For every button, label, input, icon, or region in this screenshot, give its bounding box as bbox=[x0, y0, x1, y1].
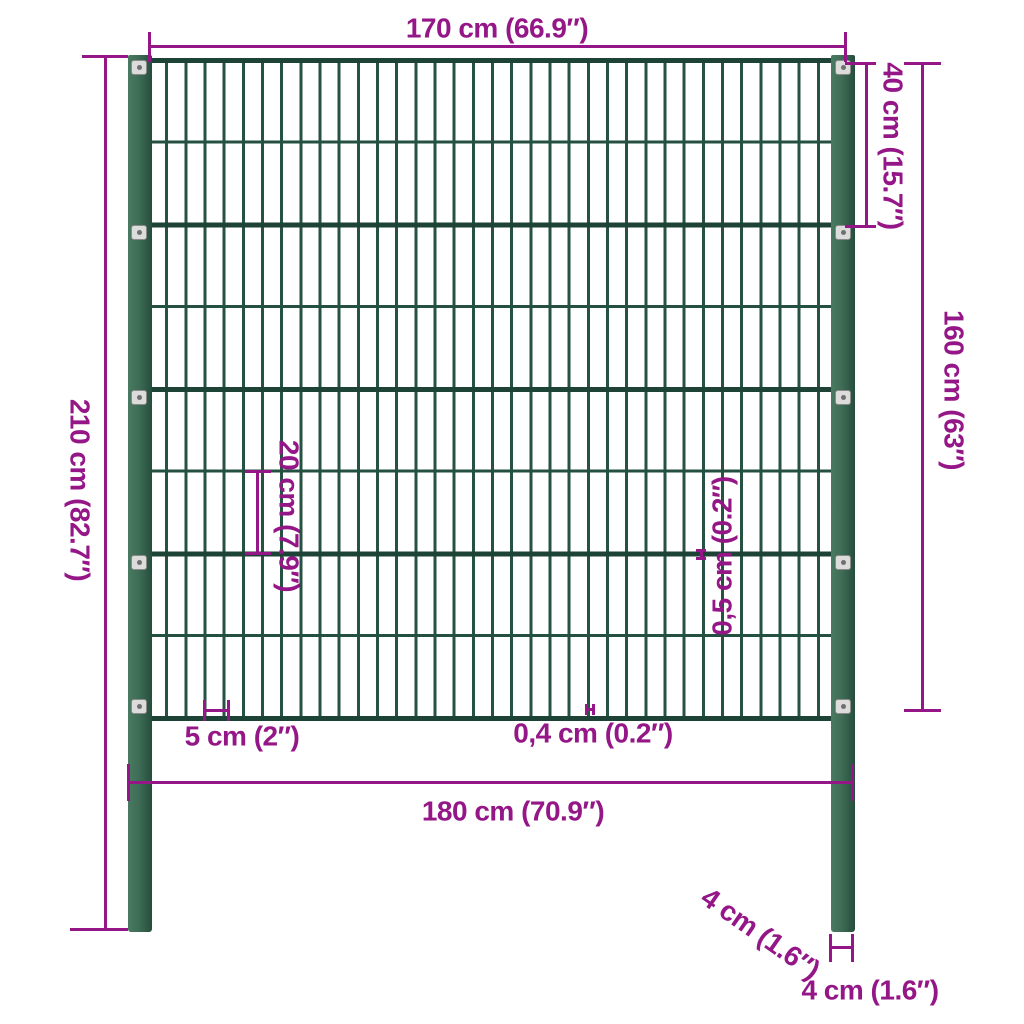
label-mesh-opening-width: 5 cm (2″) bbox=[185, 722, 300, 753]
wire-thickness-marker bbox=[696, 549, 706, 560]
dimension-tick bbox=[127, 764, 130, 801]
label-mesh-opening-height: 20 cm (7.9″) bbox=[273, 440, 304, 592]
mounting-clip bbox=[835, 555, 851, 570]
label-post-width: 4 cm (1.6″) bbox=[801, 976, 938, 1007]
mounting-clip bbox=[131, 555, 147, 570]
dimension-line-panel-height bbox=[921, 62, 924, 712]
mounting-clip bbox=[131, 699, 147, 714]
fence-dimension-diagram: 170 cm (66.9″) 40 cm (15.7″) 160 cm (63″… bbox=[0, 0, 1024, 1024]
mounting-clip bbox=[835, 699, 851, 714]
label-post-height: 210 cm (82.7″) bbox=[64, 399, 95, 581]
label-post-depth: 4 cm (1.6″) bbox=[695, 882, 825, 986]
mounting-clip bbox=[835, 390, 851, 405]
dimension-tick bbox=[148, 32, 151, 62]
dimension-line-top-width bbox=[148, 45, 847, 48]
mounting-clip bbox=[131, 390, 147, 405]
dimension-tick bbox=[245, 552, 271, 555]
left-post bbox=[128, 55, 152, 932]
label-top-width: 170 cm (66.9″) bbox=[406, 14, 588, 45]
post-width-bracket bbox=[829, 934, 854, 962]
mounting-clip bbox=[131, 225, 147, 240]
label-vertical-wire-thickness: 0,4 cm (0.2″) bbox=[513, 719, 672, 750]
dimension-tick bbox=[844, 32, 847, 62]
dimension-line-post-height bbox=[104, 55, 107, 931]
label-horizontal-wire-thickness: 0,5 cm (0.2″) bbox=[708, 476, 739, 635]
dimension-tick bbox=[845, 62, 876, 65]
dimension-tick bbox=[245, 470, 271, 473]
label-upper-section-height: 40 cm (15.7″) bbox=[877, 62, 908, 229]
dimension-line-mesh-opening-height bbox=[256, 470, 259, 555]
dimension-tick bbox=[70, 928, 128, 931]
label-bottom-width: 180 cm (70.9″) bbox=[422, 797, 604, 828]
mounting-clip bbox=[131, 60, 147, 75]
label-panel-height: 160 cm (63″) bbox=[938, 310, 969, 470]
mesh-opening-width-bracket bbox=[203, 700, 230, 721]
dimension-tick bbox=[845, 225, 876, 228]
dimension-line-upper-section bbox=[865, 62, 868, 228]
dimension-tick bbox=[82, 55, 128, 58]
dimension-tick bbox=[904, 709, 941, 712]
dimension-tick bbox=[904, 62, 941, 65]
dimension-tick bbox=[851, 764, 854, 801]
wire-thickness-marker bbox=[585, 704, 595, 715]
dimension-line-bottom-width bbox=[127, 781, 854, 784]
